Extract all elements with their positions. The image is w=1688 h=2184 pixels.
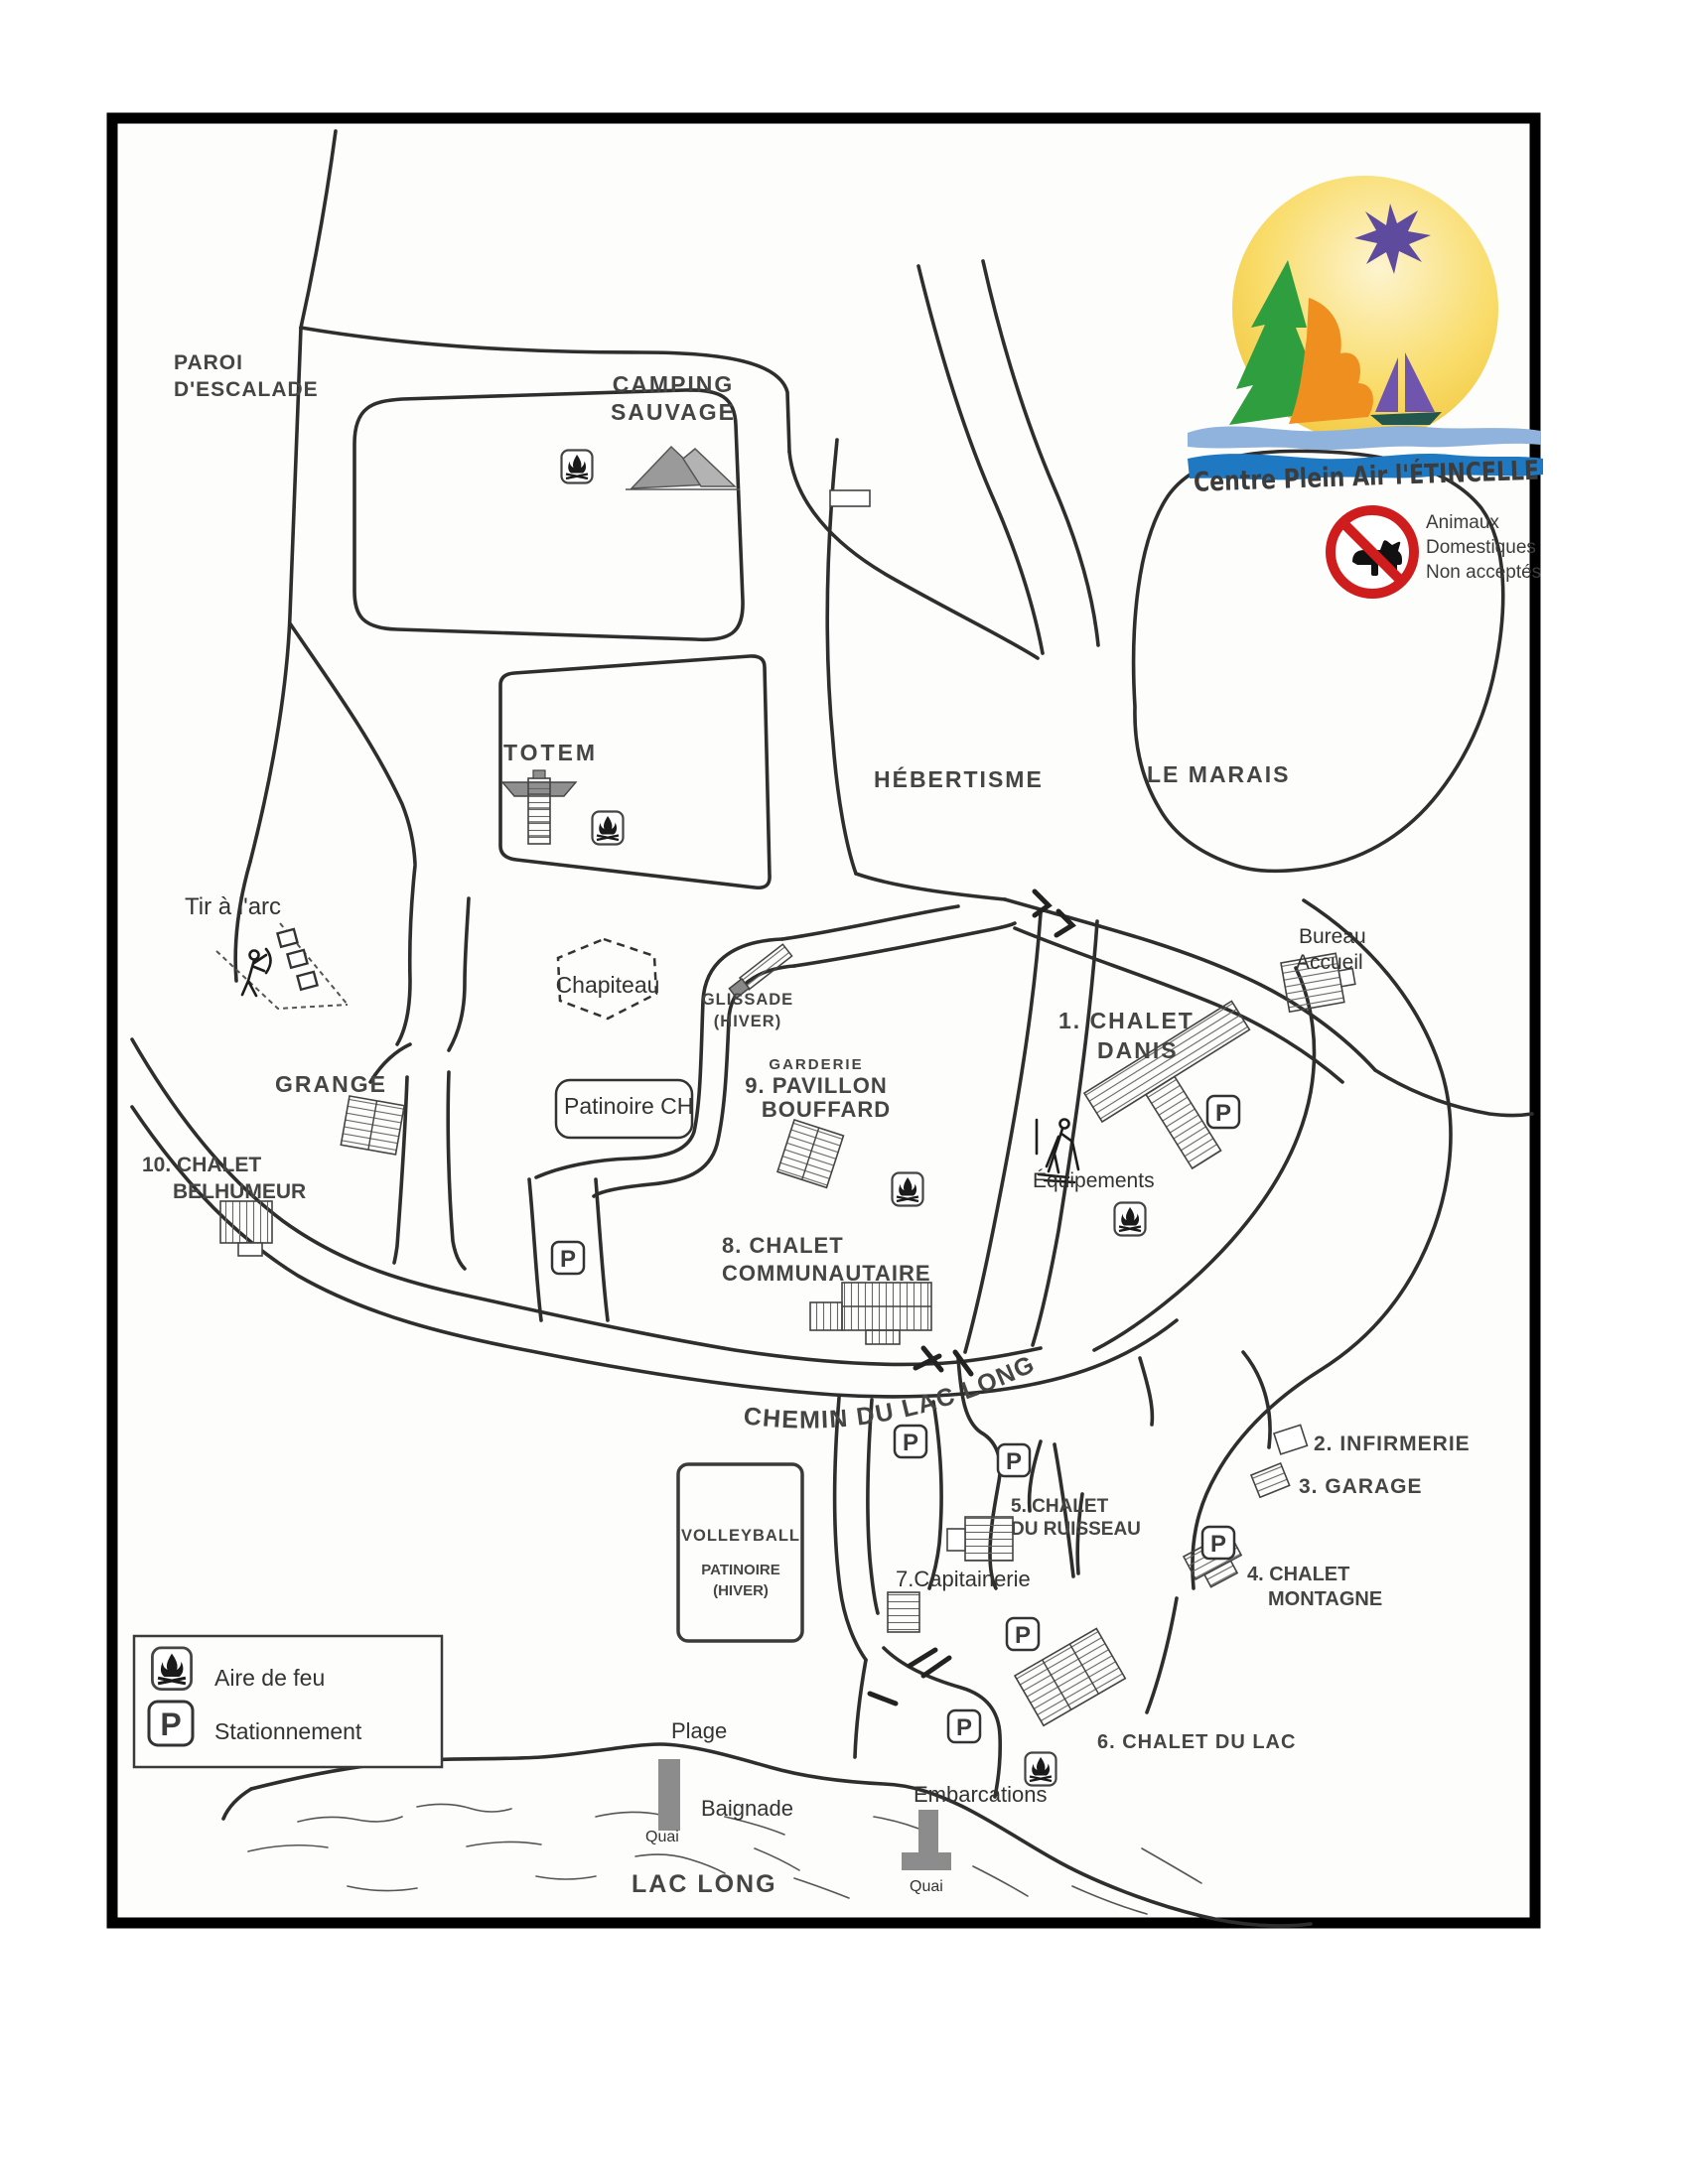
- svg-text:P: P: [560, 1246, 576, 1273]
- campfire-icon: [562, 451, 593, 483]
- grange-building: [341, 1096, 404, 1155]
- label-bureau-accueil: Bureau: [1299, 925, 1366, 948]
- label-chapiteau: Chapiteau: [556, 972, 660, 998]
- label-le-marais: LE MARAIS: [1147, 761, 1291, 787]
- campfire-icon: [152, 1648, 191, 1690]
- svg-text:P: P: [1015, 1622, 1031, 1649]
- label-volleyball: VOLLEYBALL: [681, 1527, 800, 1545]
- label-pavillon-bouffard: BOUFFARD: [762, 1097, 891, 1122]
- label-bureau-accueil: Accueil: [1296, 951, 1363, 974]
- label-camping-sauvage: SAUVAGE: [611, 399, 736, 425]
- label-glissade: (HIVER): [714, 1013, 781, 1030]
- volleyball-zone-box: [678, 1464, 802, 1641]
- svg-text:P: P: [956, 1714, 972, 1741]
- label-quai: Quai: [645, 1829, 679, 1845]
- label-chalet-communautaire: 8. CHALET: [722, 1233, 844, 1258]
- campfire-icon: [593, 812, 624, 845]
- parking-icon: P: [552, 1242, 584, 1274]
- label-pavillon-bouffard: 9. PAVILLON: [745, 1073, 887, 1098]
- label-garage: 3. GARAGE: [1299, 1475, 1423, 1498]
- label-plage: Plage: [671, 1718, 727, 1743]
- label-totem: TOTEM: [503, 740, 598, 765]
- label-hebertisme: HÉBERTISME: [874, 765, 1044, 792]
- site-map: P P P P P P P Aire de feu P Stationnemen…: [0, 0, 1688, 2184]
- label-capitainerie: 7.Capitainerie: [896, 1567, 1031, 1591]
- label-chalet-ruisseau: DU RUISSEAU: [1011, 1519, 1141, 1540]
- label-chalet-montagne: MONTAGNE: [1268, 1588, 1382, 1610]
- label-glissade: GLISSADE: [702, 991, 793, 1009]
- label-quai: Quai: [910, 1878, 943, 1895]
- parking-icon: P: [895, 1426, 926, 1457]
- parking-icon: P: [948, 1710, 980, 1742]
- label-grange: GRANGE: [275, 1071, 387, 1097]
- svg-text:P: P: [903, 1430, 918, 1456]
- svg-text:P: P: [1210, 1531, 1226, 1558]
- label-garderie: GARDERIE: [769, 1056, 863, 1073]
- capitainerie-building: [888, 1592, 919, 1632]
- no-pets-text: Non acceptés: [1426, 562, 1541, 583]
- label-chalet-montagne: 4. CHALET: [1247, 1564, 1349, 1585]
- label-camping-sauvage: CAMPING: [613, 371, 735, 397]
- label-chalet-danis: 1. CHALET: [1058, 1008, 1195, 1033]
- parking-icon: P: [1202, 1527, 1234, 1559]
- label-baignade: Baignade: [701, 1796, 793, 1821]
- label-paroi-escalade: PAROI: [174, 351, 243, 374]
- legend-label: Aire de feu: [214, 1665, 325, 1691]
- no-pets-text: Animaux: [1426, 512, 1499, 533]
- campfire-icon: [1026, 1753, 1056, 1786]
- no-pets-text: Domestiques: [1426, 537, 1536, 558]
- label-equipements: Équipements: [1033, 1169, 1155, 1192]
- label-patinoire-hiver: (HIVER): [713, 1582, 769, 1599]
- legend: Aire de feu P Stationnement: [134, 1636, 442, 1767]
- parking-icon: P: [1207, 1096, 1239, 1128]
- label-infirmerie: 2. INFIRMERIE: [1314, 1433, 1471, 1455]
- parking-icon: P: [149, 1702, 193, 1745]
- label-patinoire-ch: Patinoire CH: [564, 1093, 693, 1119]
- label-patinoire-hiver: PATINOIRE: [701, 1562, 779, 1578]
- quai-plage-dock: [658, 1759, 680, 1831]
- svg-text:P: P: [1006, 1448, 1022, 1475]
- legend-label: Stationnement: [214, 1718, 362, 1744]
- label-paroi-escalade: D'ESCALADE: [174, 378, 319, 401]
- marais-structure: [830, 490, 870, 506]
- svg-text:P: P: [1215, 1100, 1231, 1127]
- parking-icon: P: [998, 1444, 1030, 1476]
- label-chalet-communautaire: COMMUNAUTAIRE: [722, 1261, 931, 1286]
- campfire-icon: [1115, 1203, 1146, 1236]
- label-tir-a-larc: Tir à l'arc: [185, 893, 281, 920]
- label-chalet-belhumeur: 10. CHALET: [142, 1154, 261, 1176]
- map-page: P P P P P P P Aire de feu P Stationnemen…: [0, 0, 1688, 2184]
- label-chalet-ruisseau: 5. CHALET: [1011, 1496, 1109, 1517]
- parking-icon: P: [1007, 1618, 1039, 1650]
- campfire-icon: [893, 1173, 923, 1206]
- label-embarcations: Embarcations: [914, 1782, 1048, 1807]
- label-chalet-belhumeur: BELHUMEUR: [173, 1180, 306, 1203]
- label-lac-long: LAC LONG: [632, 1870, 777, 1898]
- svg-text:P: P: [160, 1706, 181, 1742]
- label-chalet-danis: DANIS: [1097, 1037, 1179, 1063]
- label-chalet-du-lac: 6. CHALET DU LAC: [1097, 1731, 1296, 1753]
